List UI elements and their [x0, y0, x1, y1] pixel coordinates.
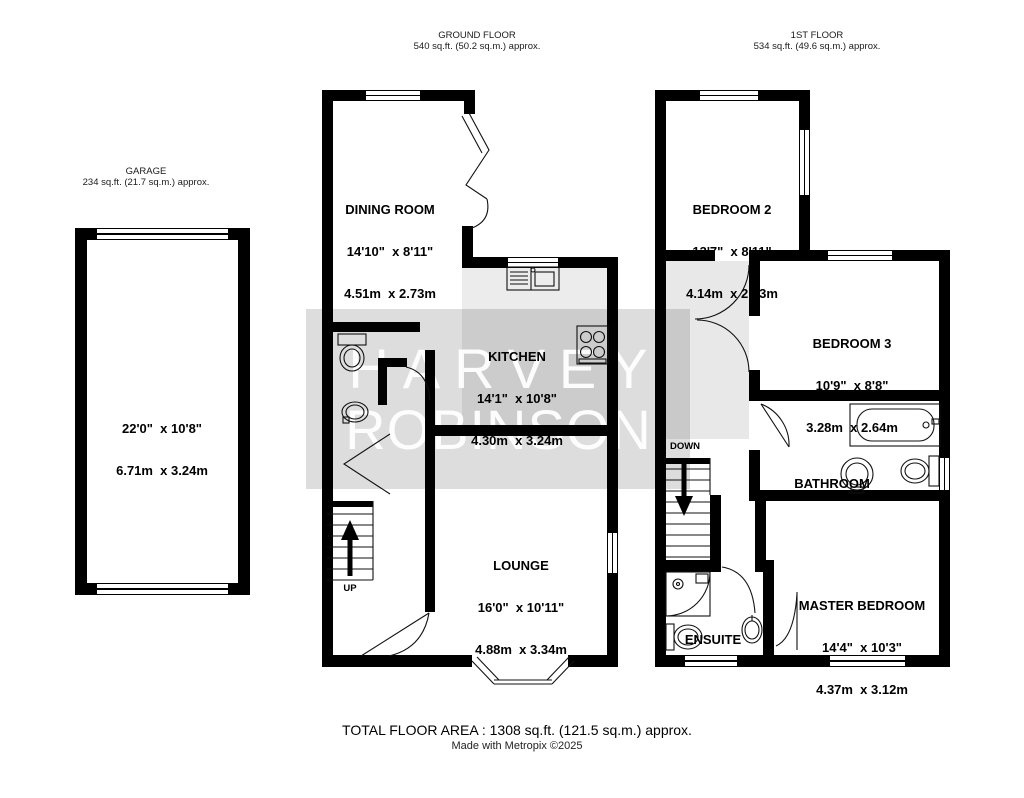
ground-floor-title: GROUND FLOOR: [414, 30, 541, 41]
first-floor-area: 534 sq.ft. (49.6 sq.m.) approx.: [754, 41, 881, 52]
metropix-credit: Made with Metropix ©2025: [451, 740, 582, 752]
kitchen-label: KITCHEN 14'1" x 10'8" 4.30m x 3.24m: [471, 322, 563, 476]
door-arc: [361, 613, 429, 656]
room-dims-metric: 4.51m x 2.73m: [344, 287, 436, 301]
room-dims-metric: 4.37m x 3.12m: [799, 683, 925, 697]
lounge-label: LOUNGE 16'0" x 10'11" 4.88m x 3.34m: [475, 531, 567, 685]
dining-room-label: DINING ROOM 14'10" x 8'11" 4.51m x 2.73m: [344, 175, 436, 329]
sink-icon: [742, 615, 762, 643]
room-dims-imperial: 14'4" x 10'3": [799, 641, 925, 655]
room-dims-imperial: 13'7" x 8'11": [686, 245, 778, 259]
down-label: DOWN: [670, 441, 700, 452]
floorplan-page: HARVEY ROBINSON: [0, 0, 1024, 798]
room-dims-metric: 3.28m x 2.64m: [806, 421, 898, 435]
room-dims-metric: 4.30m x 3.24m: [471, 434, 563, 448]
bathroom-label: BATHROOM: [794, 449, 870, 519]
door-arc: [761, 404, 789, 447]
room-dims-metric: 4.88m x 3.34m: [475, 643, 567, 657]
down-arrow-icon: [675, 464, 693, 516]
bay-window: [462, 113, 489, 229]
ensuite-label: ENSUITE: [685, 605, 741, 675]
garage-title: GARAGE: [83, 166, 210, 177]
door-arc: [469, 199, 488, 229]
up-label: UP: [343, 583, 356, 594]
garage-dims-metric: 6.71m x 3.24m: [116, 464, 208, 478]
total-floor-area: TOTAL FLOOR AREA : 1308 sq.ft. (121.5 sq…: [342, 722, 692, 738]
up-arrow-icon: [341, 520, 359, 576]
stairs-up: [327, 501, 373, 580]
ground-floor-header: GROUND FLOOR 540 sq.ft. (50.2 sq.m.) app…: [414, 30, 541, 52]
master-bedroom-label: MASTER BEDROOM 14'4" x 10'3" 4.37m x 3.1…: [799, 571, 925, 725]
garage-header: GARAGE 234 sq.ft. (21.7 sq.m.) approx.: [83, 166, 210, 188]
room-dims-imperial: 14'1" x 10'8": [471, 392, 563, 406]
room-name: BEDROOM 3: [806, 337, 898, 351]
room-name: MASTER BEDROOM: [799, 599, 925, 613]
stairs-down: [662, 458, 710, 557]
hob-icon: [577, 326, 608, 364]
room-name: ENSUITE: [685, 633, 741, 647]
room-dims-metric: 4.14m x 2.73m: [686, 287, 778, 301]
bedroom2-label: BEDROOM 2 13'7" x 8'11" 4.14m x 2.73m: [686, 175, 778, 329]
toilet-icon: [901, 456, 939, 486]
understairs-lines: [344, 434, 390, 494]
first-floor-title: 1ST FLOOR: [754, 30, 881, 41]
room-name: DINING ROOM: [344, 203, 436, 217]
first-floor-header: 1ST FLOOR 534 sq.ft. (49.6 sq.m.) approx…: [754, 30, 881, 52]
bedroom3-label: BEDROOM 3 10'9" x 8'8" 3.28m x 2.64m: [806, 309, 898, 463]
sink-icon: [342, 402, 368, 423]
garage-room-label: 22'0" x 10'8" 6.71m x 3.24m: [116, 394, 208, 506]
room-name: BEDROOM 2: [686, 203, 778, 217]
room-dims-imperial: 16'0" x 10'11": [475, 601, 567, 615]
room-name: BATHROOM: [794, 477, 870, 491]
room-dims-imperial: 14'10" x 8'11": [344, 245, 436, 259]
room-name: KITCHEN: [471, 350, 563, 364]
door-arc: [406, 367, 430, 400]
room-name: LOUNGE: [475, 559, 567, 573]
garage-dims-imperial: 22'0" x 10'8": [116, 422, 208, 436]
door-arc: [776, 592, 797, 650]
garage-area: 234 sq.ft. (21.7 sq.m.) approx.: [83, 177, 210, 188]
kitchen-sink-icon: [507, 267, 559, 290]
room-dims-imperial: 10'9" x 8'8": [806, 379, 898, 393]
toilet-icon: [338, 334, 366, 371]
ground-floor-area: 540 sq.ft. (50.2 sq.m.) approx.: [414, 41, 541, 52]
